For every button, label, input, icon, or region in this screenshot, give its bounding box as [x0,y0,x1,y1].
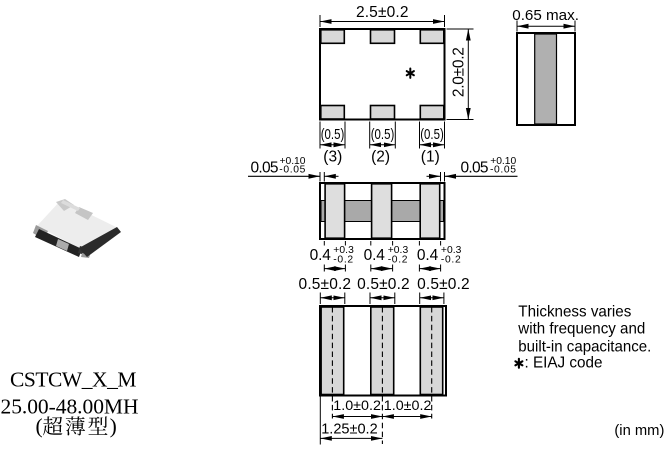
svg-text:1.0±0.2: 1.0±0.2 [384,398,432,414]
svg-text:0.5±0.2: 0.5±0.2 [357,276,410,293]
svg-text:-0.05: -0.05 [279,164,305,175]
svg-text:-0.2: -0.2 [333,254,353,265]
svg-text:-0.2: -0.2 [441,254,461,265]
svg-text:2.5±0.2: 2.5±0.2 [356,4,409,21]
svg-text:25.00-48.00MH: 25.00-48.00MH [1,395,139,419]
svg-text:0.05: 0.05 [251,160,279,177]
svg-text:0.4: 0.4 [417,247,439,264]
svg-text:(0.5): (0.5) [420,126,444,143]
svg-text:(0.5): (0.5) [371,126,395,143]
svg-text:0.4: 0.4 [310,247,332,264]
svg-text:1.0±0.2: 1.0±0.2 [333,398,381,414]
svg-text:-0.05: -0.05 [490,164,516,175]
svg-text:-0.2: -0.2 [388,254,408,265]
svg-text:(in mm): (in mm) [614,422,664,439]
svg-text:1.25±0.2: 1.25±0.2 [321,421,378,437]
svg-text:0.4: 0.4 [364,247,386,264]
svg-text:): ) [110,414,117,438]
svg-text:0.5±0.2: 0.5±0.2 [299,276,352,293]
svg-text:: EIAJ code: : EIAJ code [525,355,603,372]
svg-text:0.65 max.: 0.65 max. [512,7,579,24]
svg-text:built-in capacitance.: built-in capacitance. [518,339,651,356]
svg-text:with frequency and: with frequency and [517,321,645,338]
svg-text:2.0±0.2: 2.0±0.2 [450,47,467,97]
svg-text:(1): (1) [421,149,440,166]
svg-text:Thickness varies: Thickness varies [518,303,631,320]
svg-text:CSTCW_X_M: CSTCW_X_M [10,368,137,392]
svg-text:(0.5): (0.5) [321,126,345,143]
svg-text:(: ( [36,414,43,438]
svg-text:0.5±0.2: 0.5±0.2 [417,276,470,293]
svg-text:0.05: 0.05 [461,160,489,177]
svg-text:(2): (2) [371,149,390,166]
svg-text:(3): (3) [323,149,342,166]
